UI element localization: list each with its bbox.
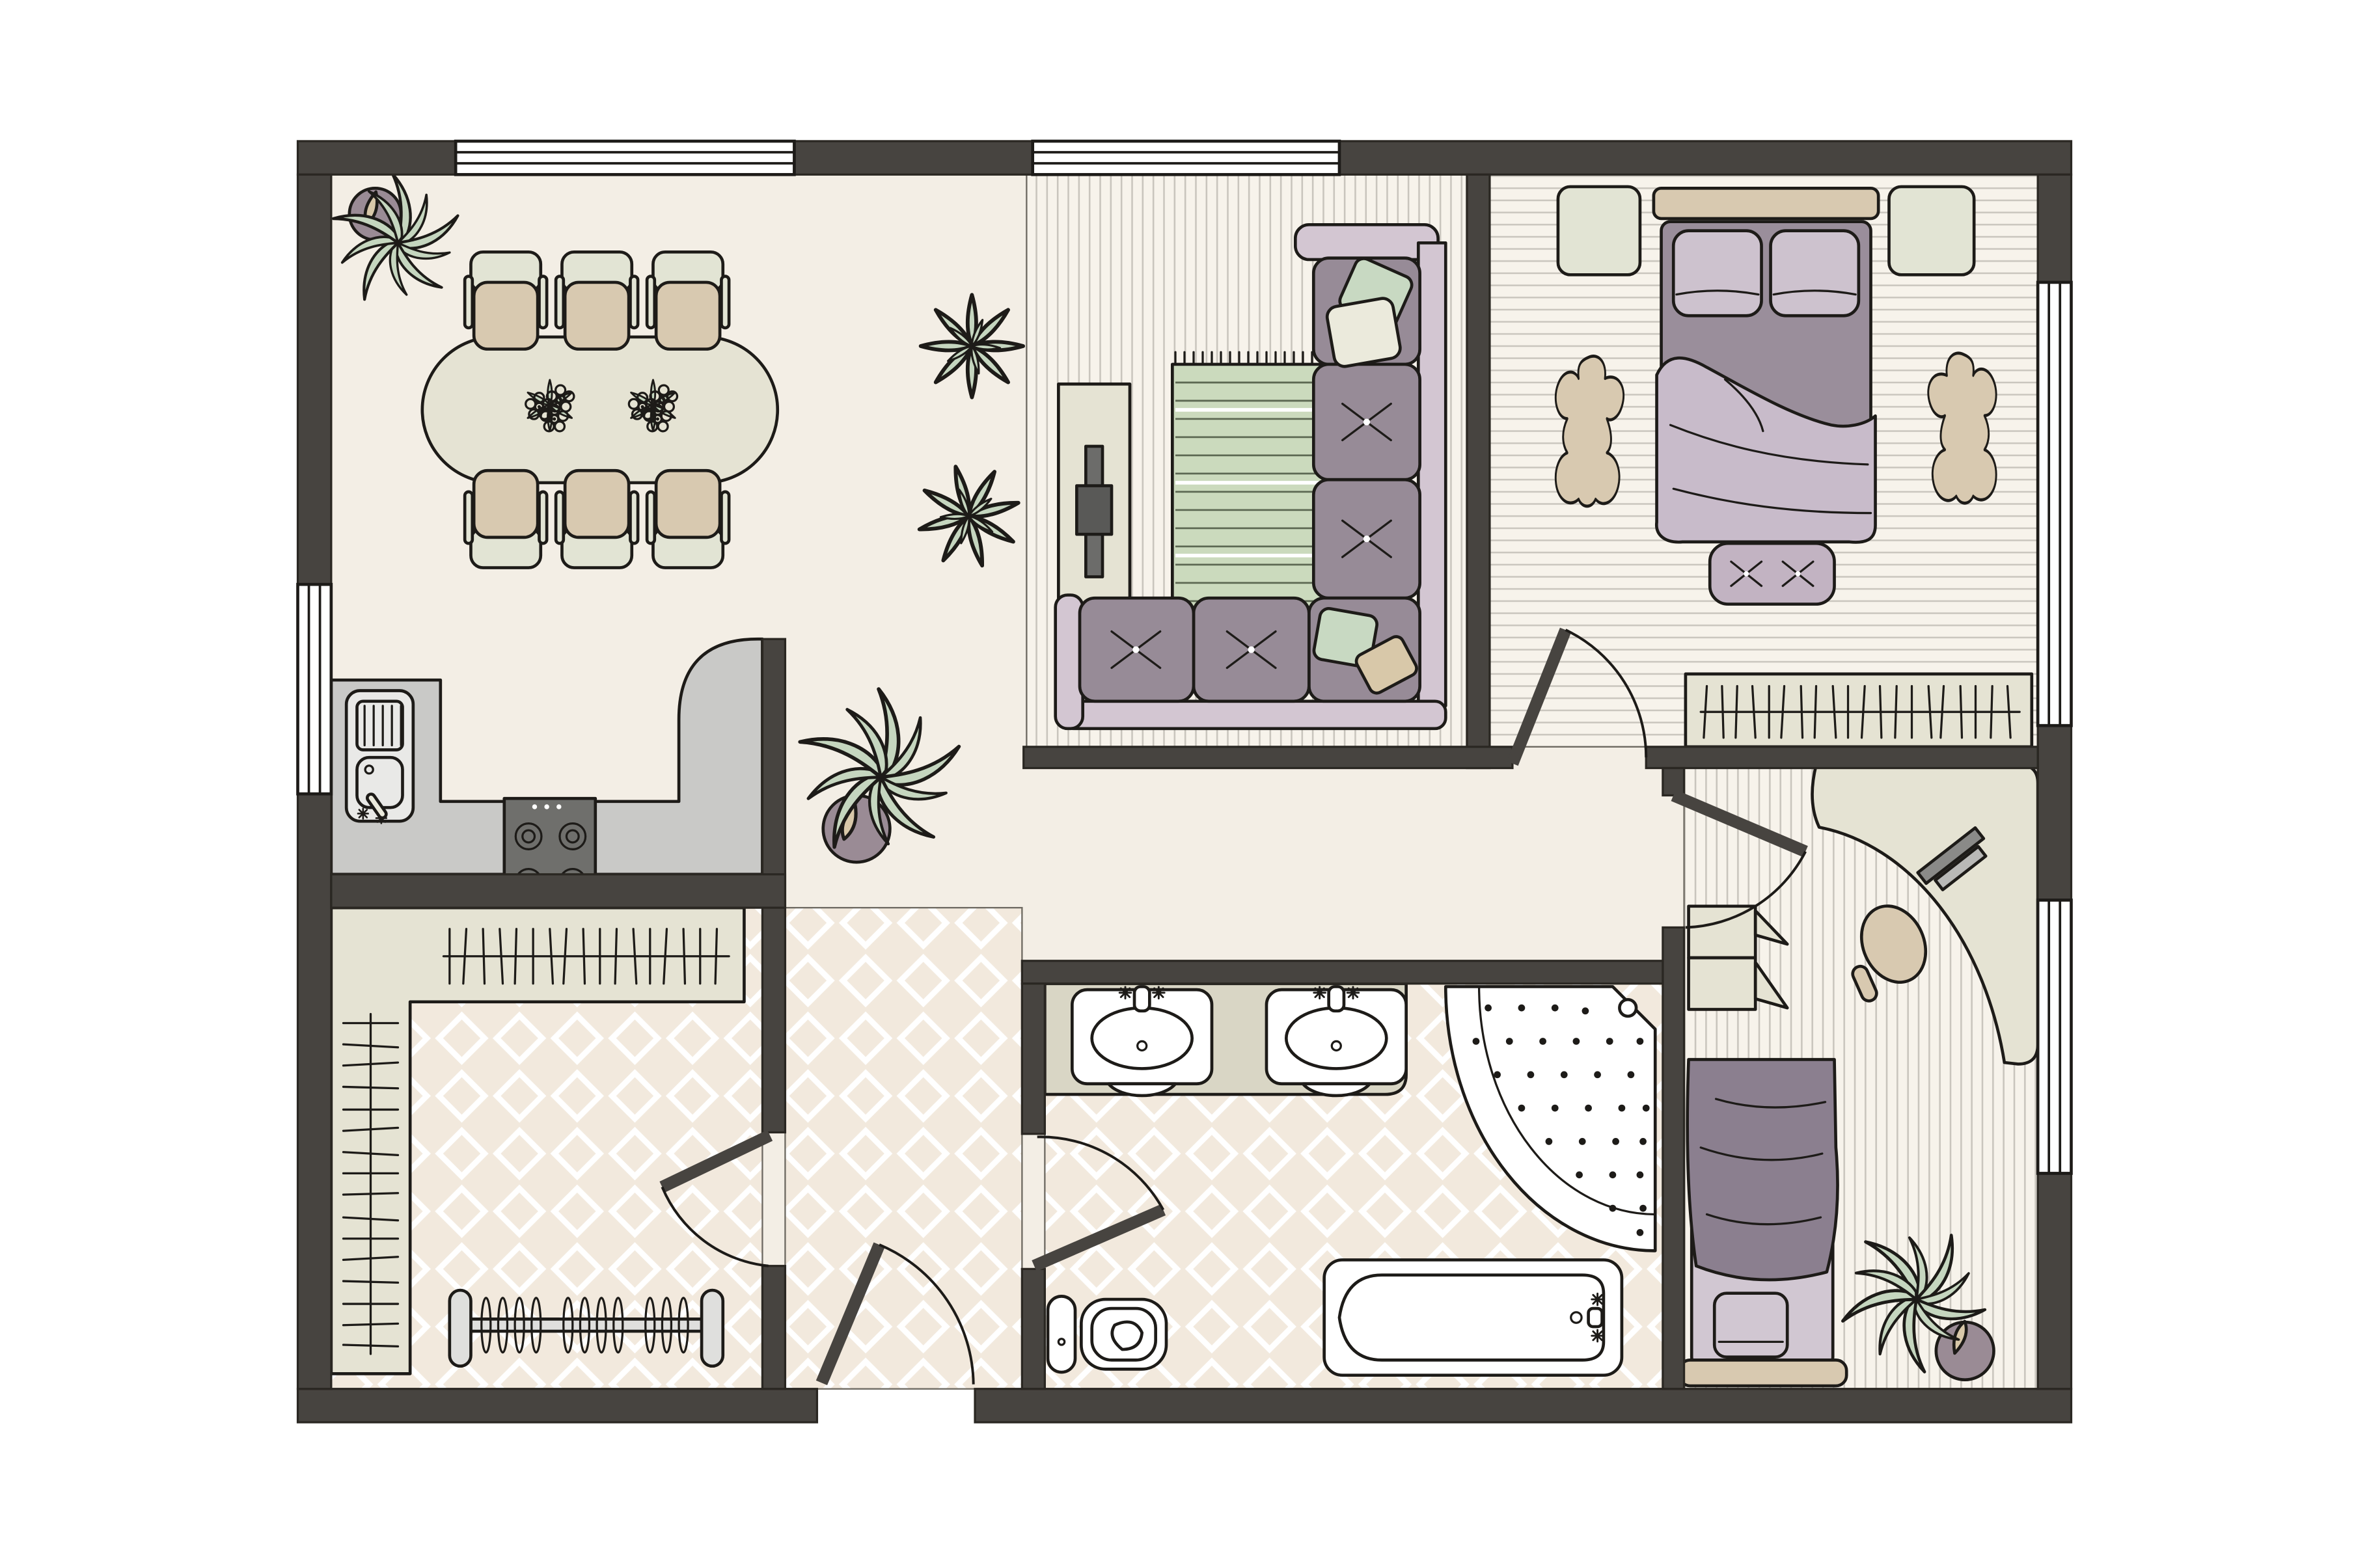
wall-right [2038,725,2071,900]
dining-top-window [456,141,794,174]
wall-bathroom-left [1022,1269,1045,1388]
wall-closet-right [762,1266,785,1389]
wall-living-hall [1024,747,1513,768]
rosette-plant [921,295,1023,397]
bedroom-right-window [2038,282,2071,725]
office-right-window [2038,900,2071,1173]
bed-pillow [1771,231,1859,316]
single-bed-blanket [1688,1059,1838,1280]
wall-bathroom-left [1022,984,1045,1134]
sofa-back-bottom [1063,701,1445,729]
bed-headboard [1654,188,1878,219]
wall-right [2038,174,2071,282]
kitchen-sink-unit [346,691,413,824]
bathtub [1324,1260,1622,1375]
dining-table [422,337,778,483]
dining-chair [556,470,638,567]
wall-top [794,141,1032,174]
wall-left [298,794,331,1389]
foot-bench [1710,543,1834,604]
wall-bottom [298,1389,817,1422]
sofa-arm-top [1295,224,1438,260]
dining-chair [556,252,638,349]
wall-left [298,174,331,584]
bed-footboard [1680,1360,1847,1386]
wall-bedroom-office [1646,747,2038,768]
bed-pillow [1673,231,1761,316]
toilet-tank [1048,1296,1075,1372]
wall-office-stub [1663,768,1684,796]
sofa-back-right [1418,243,1445,706]
tv-mount [1076,486,1112,535]
wall-bottom [975,1389,2071,1422]
wall-office-left [1663,927,1684,1388]
floor-entry-corridor [785,908,1022,1389]
living-top-window [1033,141,1339,174]
nightstand [1889,187,1975,275]
dining-left-window [298,584,331,794]
dining-chair [647,252,729,349]
bathroom-sink [1072,986,1212,1096]
wall-top [298,141,456,174]
throw-pillow [1326,297,1402,368]
wall-living-bedroom [1467,174,1490,768]
shower-drain [1619,999,1636,1016]
dining-chair [647,470,729,567]
floor-plan-canvas [0,0,2369,1568]
wall-top [1339,141,2072,174]
dining-chair [465,470,547,567]
dining-chair [465,252,547,349]
bathroom-sink [1267,986,1406,1096]
bedroom-wardrobe [1686,674,2032,747]
nightstand [1558,187,1640,275]
wall-bathroom-top [1022,961,1663,984]
office-bed [1680,1059,1847,1386]
wall-kitchen-closet [331,874,786,908]
wall-right [2038,1173,2071,1388]
toilet [1048,1296,1166,1372]
